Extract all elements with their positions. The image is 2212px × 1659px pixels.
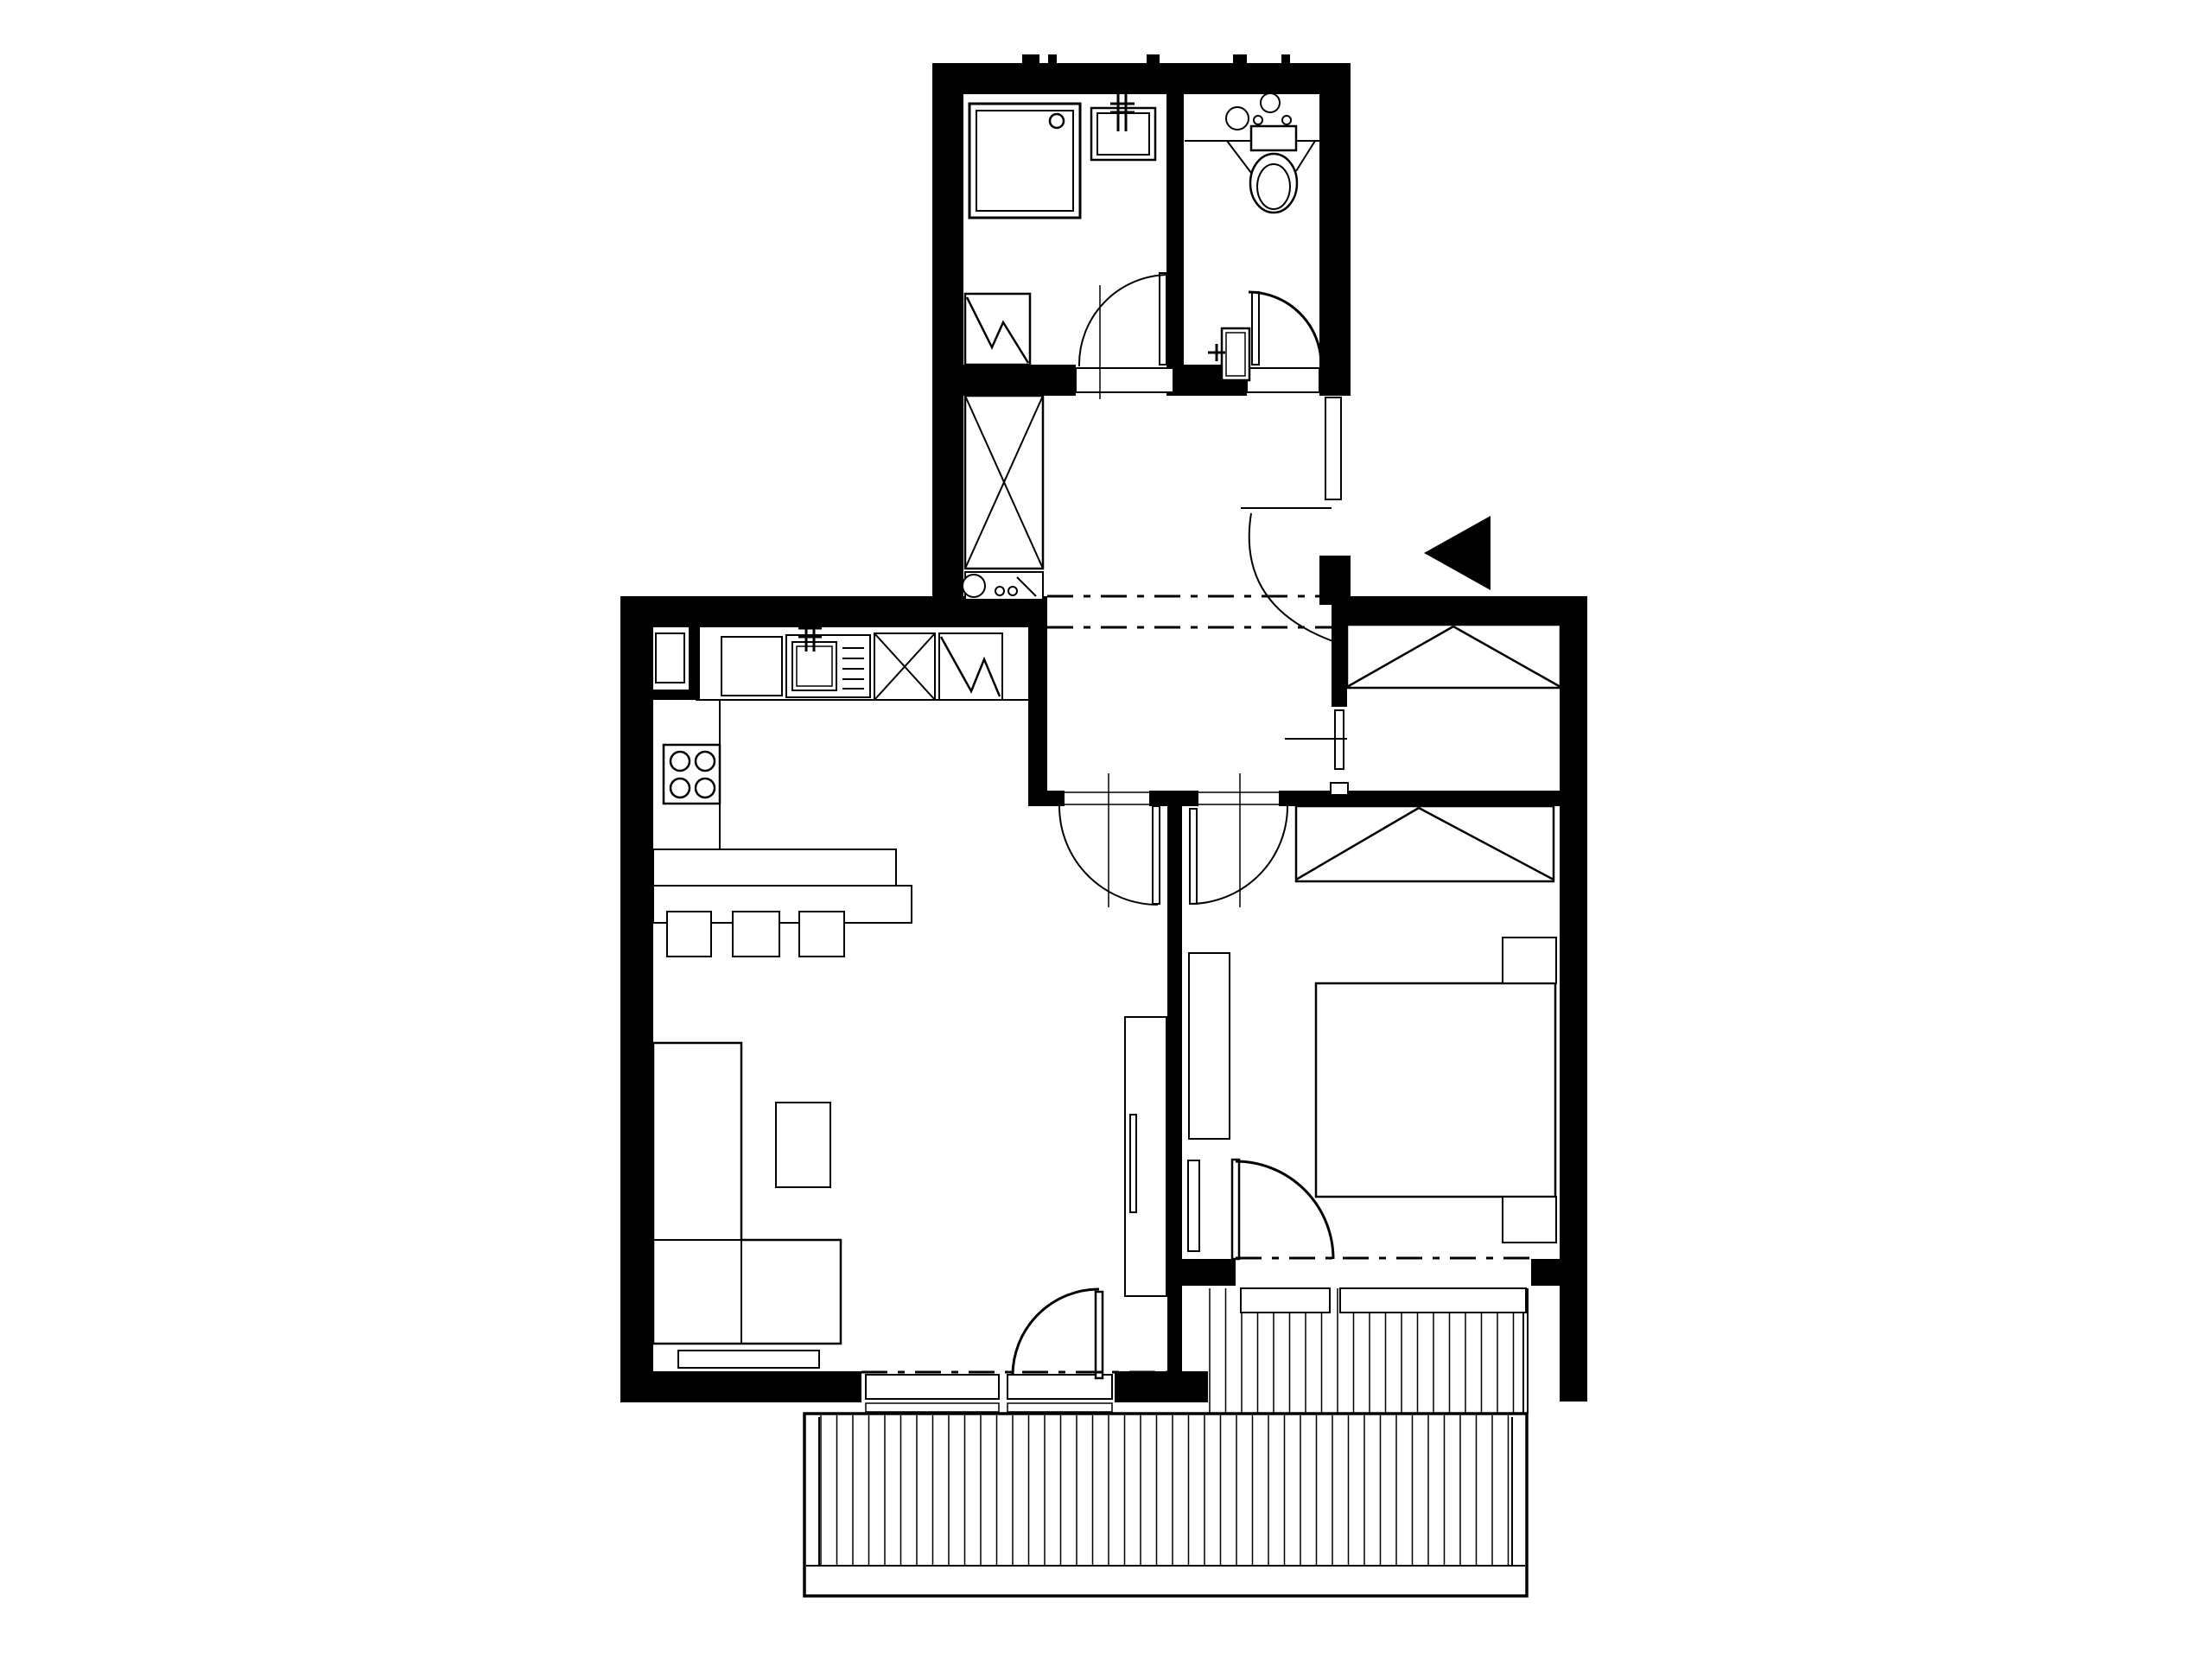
wall-left-outer <box>620 596 653 1402</box>
hall-shelf-circle-small-1 <box>995 587 1004 595</box>
floor-plan-page <box>0 0 2212 1659</box>
kitchen-cabinet <box>721 637 782 696</box>
wall-hall-right-thin <box>1332 605 1347 707</box>
wall-right-outer <box>1560 596 1587 1402</box>
wall-top-block-top <box>932 63 1351 94</box>
bed <box>1316 983 1555 1197</box>
bedroom-desk <box>1189 953 1230 1139</box>
threshold-step-right <box>1007 1403 1112 1412</box>
kitchen-shaft <box>656 633 684 683</box>
bedroom-radiator <box>1188 1160 1199 1251</box>
cooktop-burner-3 <box>671 779 690 798</box>
balcony-lower-deck-hatch <box>821 1415 1509 1566</box>
wc-decor-circle-1 <box>1226 107 1249 130</box>
wc-decor-circle-3 <box>1254 116 1262 124</box>
bar-stool-2 <box>733 912 779 957</box>
entry-arrow-icon <box>1424 516 1491 590</box>
window-bedroom-right <box>1340 1288 1526 1313</box>
wc-shelf-diag-r <box>1296 141 1315 171</box>
door-balcony-bedroom-leaf <box>1232 1160 1239 1259</box>
wall-bath-south-left <box>932 365 1076 396</box>
door-balcony-living-arc <box>1013 1289 1099 1376</box>
tv-sideboard <box>678 1351 819 1368</box>
hall-shelf-circle-large <box>963 575 985 597</box>
wall-corridor-south-left <box>1028 791 1056 806</box>
wardrobe-bedroom <box>1296 806 1554 881</box>
wall-top-block-right <box>1319 63 1351 396</box>
toilet-bowl-inner <box>1257 164 1290 209</box>
wall-nook-top <box>1347 596 1587 627</box>
balcony-lower-outline <box>804 1414 1527 1596</box>
entry-door-panel <box>1325 397 1341 499</box>
floor-plan-canvas <box>0 0 2212 1659</box>
door-bedroom-arc <box>1190 806 1287 904</box>
wardrobe-entry-nook <box>1347 625 1560 688</box>
wall-bedroom-top <box>1287 791 1560 806</box>
wall-kitchen-corridor <box>1028 627 1047 791</box>
bath-sink-outer <box>1091 108 1155 160</box>
nightstand-bottom <box>1503 1197 1556 1243</box>
wall-bedroom-south-left <box>1182 1259 1236 1286</box>
wall-kitchen-niche-bottom <box>644 690 689 700</box>
toilet-cistern <box>1251 126 1296 150</box>
wall-tie-nub-4 <box>1233 54 1247 63</box>
wc-decor-circle-4 <box>1282 116 1291 124</box>
shower-drain <box>1050 114 1064 128</box>
window-bedroom-left <box>1241 1288 1330 1313</box>
wc-shelf-diag-l <box>1227 141 1251 173</box>
wall-tie-nub-1 <box>1022 54 1039 63</box>
door-bedroom-leaf <box>1190 809 1197 904</box>
bar-counter-upper <box>653 849 896 886</box>
wall-top-block-left <box>932 63 963 627</box>
wc-decor-circle-2 <box>1261 93 1280 112</box>
tv-screen <box>1130 1115 1136 1212</box>
sliding-door-jamb <box>1331 783 1348 795</box>
wall-living-bedroom-divider <box>1167 806 1182 1371</box>
washing-machine <box>965 294 1030 365</box>
opening-frame-wc <box>1247 368 1319 392</box>
door-balcony-living-leaf <box>1096 1292 1103 1378</box>
wall-corridor-south-mid <box>1158 791 1190 806</box>
door-bathroom-leaf <box>1160 273 1166 365</box>
cooktop-burner-2 <box>696 752 715 771</box>
wall-bottom-mid <box>1115 1371 1208 1402</box>
sofa-l-shape <box>653 1043 841 1344</box>
window-living-left <box>866 1375 999 1399</box>
wall-kitchen-top <box>620 596 1047 627</box>
door-bathroom-arc <box>1079 275 1169 366</box>
threshold-step-left <box>866 1403 999 1412</box>
opening-frame-bathroom <box>1076 368 1173 392</box>
cooktop-burner-4 <box>696 779 715 798</box>
door-living-leaf <box>1153 806 1160 904</box>
bar-stool-3 <box>799 912 844 957</box>
hall-shelf-circle-small-2 <box>1008 587 1017 595</box>
wall-tie-nub-3 <box>1147 54 1160 63</box>
wall-kitchen-niche-right <box>689 620 700 700</box>
wall-bottom-left <box>620 1371 861 1402</box>
wall-tie-nub-2 <box>1048 54 1057 63</box>
wall-bedroom-south-right <box>1531 1259 1560 1286</box>
coffee-table <box>776 1103 830 1187</box>
bar-stool-1 <box>667 912 711 957</box>
wall-bath-wc-divider <box>1166 94 1184 396</box>
nightstand-top <box>1503 938 1556 983</box>
door-wc-leaf <box>1252 292 1259 365</box>
cooktop-burner-1 <box>671 752 690 771</box>
wall-tie-nub-5 <box>1281 54 1290 63</box>
